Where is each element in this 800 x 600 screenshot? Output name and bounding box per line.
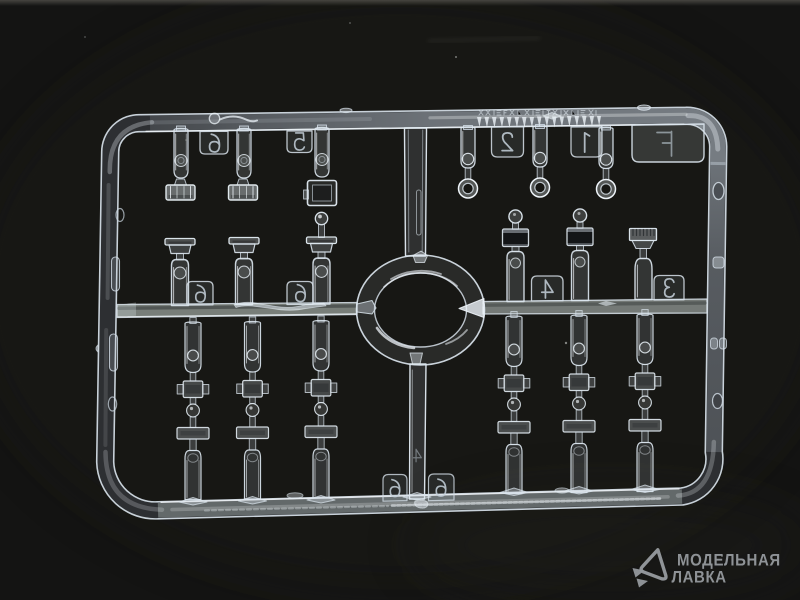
svg-text:ЛАВКА: ЛАВКА xyxy=(672,568,727,587)
